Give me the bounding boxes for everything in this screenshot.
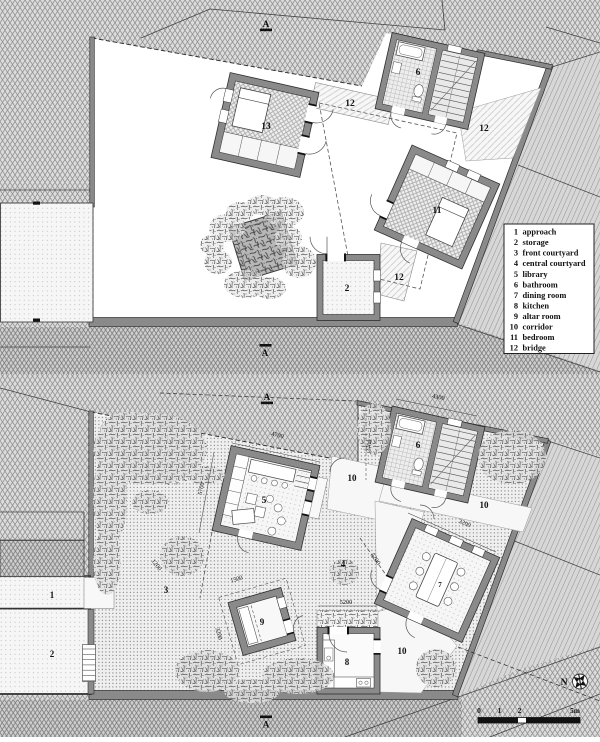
svg-text:10: 10 [398, 646, 408, 656]
svg-text:dining room: dining room [523, 291, 567, 300]
svg-text:2: 2 [345, 284, 350, 294]
svg-text:front courtyard: front courtyard [523, 249, 579, 258]
svg-text:storage: storage [523, 238, 549, 247]
svg-text:11: 11 [433, 206, 442, 216]
svg-text:approach: approach [523, 228, 557, 237]
svg-text:3: 3 [514, 249, 518, 258]
svg-text:11: 11 [510, 333, 518, 342]
svg-text:0: 0 [477, 706, 481, 715]
svg-text:1: 1 [514, 228, 518, 237]
svg-text:8: 8 [345, 657, 350, 667]
svg-text:1: 1 [498, 706, 502, 715]
svg-text:A: A [263, 19, 270, 29]
svg-text:6: 6 [416, 441, 421, 451]
svg-text:1: 1 [50, 590, 55, 600]
svg-text:A: A [264, 392, 271, 402]
svg-text:altar room: altar room [523, 312, 561, 321]
svg-text:bedroom: bedroom [523, 333, 555, 342]
svg-text:12: 12 [479, 124, 489, 134]
svg-text:12: 12 [345, 99, 355, 109]
svg-text:5: 5 [262, 496, 267, 506]
svg-text:9: 9 [514, 312, 518, 321]
svg-text:5200: 5200 [340, 599, 353, 606]
svg-text:9: 9 [260, 617, 265, 627]
svg-text:12: 12 [394, 273, 404, 283]
svg-text:corridor: corridor [523, 323, 554, 332]
svg-text:bridge: bridge [523, 344, 547, 353]
svg-text:7: 7 [514, 291, 518, 300]
svg-text:library: library [523, 270, 549, 279]
svg-text:4: 4 [341, 559, 346, 569]
svg-text:6: 6 [416, 68, 421, 78]
svg-text:A: A [262, 348, 269, 358]
svg-text:central courtyard: central courtyard [523, 259, 586, 268]
svg-text:13: 13 [261, 122, 271, 132]
svg-text:3: 3 [164, 585, 169, 595]
svg-text:10: 10 [510, 323, 518, 332]
svg-text:N: N [561, 678, 568, 688]
svg-text:2: 2 [514, 238, 518, 247]
svg-text:6: 6 [514, 280, 518, 289]
svg-text:5: 5 [514, 270, 518, 279]
svg-text:7: 7 [438, 581, 442, 589]
svg-text:12: 12 [510, 344, 518, 353]
svg-text:10: 10 [480, 500, 490, 510]
svg-text:2: 2 [50, 649, 55, 659]
svg-text:A: A [263, 720, 270, 730]
svg-text:5m: 5m [570, 706, 581, 715]
svg-text:2: 2 [518, 706, 522, 715]
svg-text:bathroom: bathroom [523, 280, 558, 289]
svg-text:kitchen: kitchen [523, 302, 550, 311]
svg-text:10: 10 [348, 473, 358, 483]
svg-text:8: 8 [514, 302, 518, 311]
